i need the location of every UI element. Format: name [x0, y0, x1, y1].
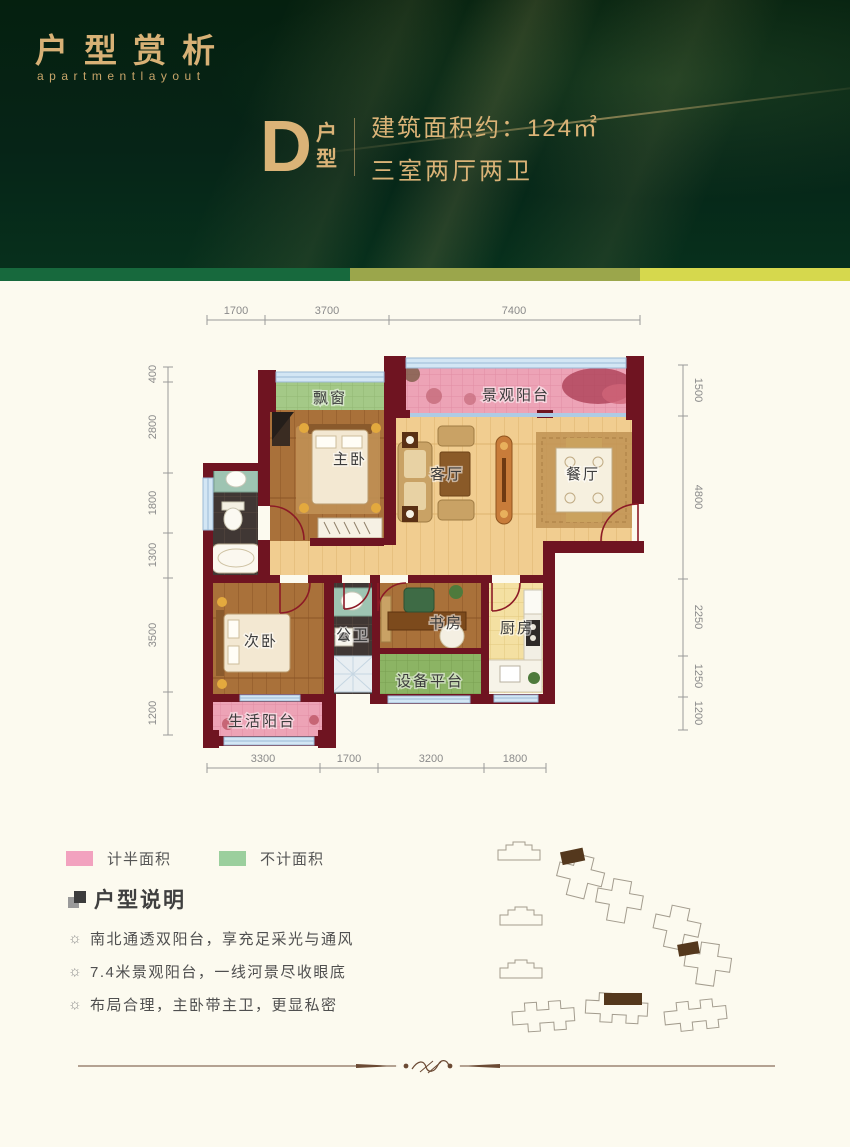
sun-bullet-icon: ☼: [68, 930, 90, 947]
room-label-living: 客厅: [430, 466, 464, 483]
siteplan: [498, 842, 733, 1033]
divider-ornament: [78, 1061, 775, 1073]
svg-text:2800: 2800: [147, 415, 159, 439]
svg-text:4800: 4800: [692, 485, 704, 509]
svg-text:1300: 1300: [147, 543, 159, 567]
svg-text:1700: 1700: [224, 305, 248, 317]
svg-text:400: 400: [147, 365, 159, 383]
room-label-kitchen: 厨房: [500, 620, 534, 637]
svg-text:1800: 1800: [147, 491, 159, 515]
siteplan-highlighted-units: [560, 848, 700, 1005]
note-item: ☼ 布局合理，主卧带主卫，更显私密: [68, 988, 354, 1021]
room-label-life-balcony: 生活阳台: [228, 713, 296, 730]
room-label-view-balcony: 景观阳台: [482, 387, 550, 404]
notes-heading-row: 户型说明: [68, 884, 186, 914]
legend-label-excluded-area: 不计面积: [260, 848, 324, 869]
svg-text:3700: 3700: [315, 305, 339, 317]
room-label-bay: 飘窗: [313, 389, 347, 407]
svg-text:3300: 3300: [251, 753, 275, 765]
svg-text:3200: 3200: [419, 753, 443, 765]
note-item: ☼ 南北通透双阳台，享充足采光与通风: [68, 922, 354, 955]
room-label-master: 主卧: [333, 451, 367, 468]
legend-swatch-half-area: [66, 851, 93, 866]
notes-heading: 户型说明: [94, 884, 186, 914]
svg-text:1700: 1700: [337, 753, 361, 765]
svg-text:2250: 2250: [692, 605, 704, 629]
notes-list: ☼ 南北通透双阳台，享充足采光与通风 ☼ 7.4米景观阳台，一线河景尽收眼底 ☼…: [68, 922, 354, 1021]
note-text: 7.4米景观阳台，一线河景尽收眼底: [90, 961, 346, 982]
note-text: 布局合理，主卧带主卫，更显私密: [90, 994, 338, 1015]
note-item: ☼ 7.4米景观阳台，一线河景尽收眼底: [68, 955, 354, 988]
room-label-second: 次卧: [244, 633, 278, 650]
svg-text:1200: 1200: [692, 701, 704, 725]
svg-text:1250: 1250: [692, 664, 704, 688]
room-label-equipment: 设备平台: [396, 673, 464, 690]
sun-bullet-icon: ☼: [68, 996, 90, 1013]
legend-swatch-excluded-area: [219, 851, 246, 866]
poster: 户型赏析 apartmentlayout D 户型 建筑面积约：124㎡ 三室两…: [0, 0, 850, 1147]
legend-label-half-area: 计半面积: [107, 848, 171, 869]
sun-bullet-icon: ☼: [68, 963, 90, 980]
room-label-bath2: 公卫: [336, 627, 370, 644]
overlapping-squares-icon: [68, 889, 88, 909]
room-label-study: 书房: [429, 615, 463, 632]
svg-text:7400: 7400: [502, 305, 526, 317]
room-label-dining: 餐厅: [566, 466, 600, 483]
svg-text:3500: 3500: [147, 623, 159, 647]
svg-text:1800: 1800: [503, 753, 527, 765]
svg-text:1200: 1200: [147, 701, 159, 725]
svg-text:1500: 1500: [692, 378, 704, 402]
legend: 计半面积 不计面积: [66, 848, 358, 869]
note-text: 南北通透双阳台，享充足采光与通风: [90, 928, 354, 949]
